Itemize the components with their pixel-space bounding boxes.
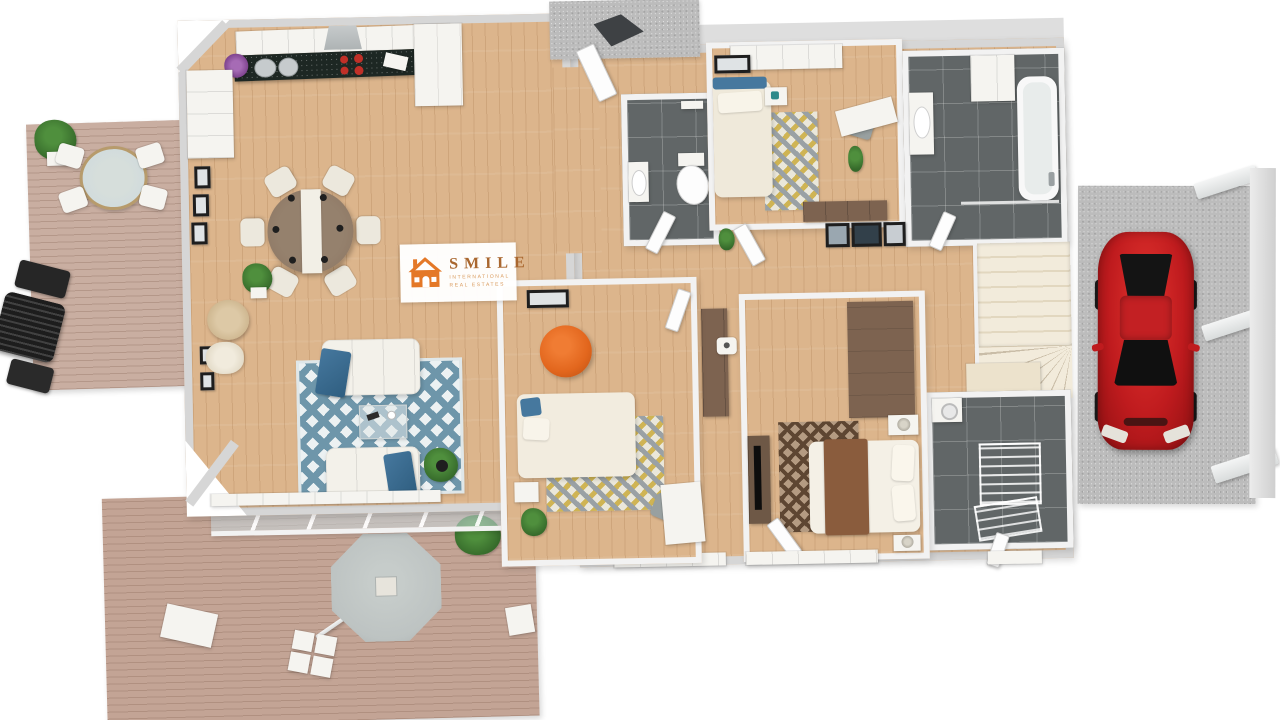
carport-edge-wall: [1249, 168, 1276, 498]
plant-pot: [251, 287, 267, 298]
window-sill: [210, 490, 440, 506]
wall-art: [194, 166, 210, 188]
cube-seats: [287, 630, 338, 679]
place-setting: [336, 225, 343, 232]
floor-basket: [206, 342, 245, 375]
bbq-side-shelf: [14, 259, 71, 299]
bed-runner: [824, 439, 870, 536]
bathroom-cabinet: [970, 55, 1015, 102]
tv-screen: [754, 446, 762, 510]
house-icon-door: [422, 276, 429, 287]
place-setting: [288, 195, 295, 202]
bed-pillow: [717, 90, 762, 113]
sink-basin: [913, 106, 931, 138]
planter-box: [160, 603, 218, 647]
stove-burner: [340, 55, 348, 63]
exterior-step: [988, 550, 1042, 564]
place-setting: [321, 256, 328, 263]
hall-picture: [825, 223, 849, 247]
wall-art: [193, 194, 209, 216]
house-icon-window: [414, 277, 419, 282]
wicker-chair: [207, 299, 250, 340]
driveway: [1078, 186, 1257, 504]
toilet-bowl: [673, 162, 712, 207]
bed-pillow: [523, 417, 550, 440]
entry-hall-floor: [552, 67, 602, 254]
tall-cabinet-fridge: [414, 23, 464, 106]
watermark-logo: SMILE INTERNATIONAL REAL ESTATES: [400, 242, 517, 302]
house-icon: [408, 257, 443, 290]
place-setting: [320, 194, 327, 201]
bed-headboard-blue: [713, 77, 767, 90]
cube-seat: [292, 630, 315, 652]
hall-cabinet: [701, 308, 729, 416]
cube-seat: [314, 634, 337, 656]
side-table-item: [724, 342, 730, 348]
plan-tilt-wrapper: SMILE INTERNATIONAL REAL ESTATES: [0, 0, 1280, 720]
wc-basin: [631, 170, 646, 196]
shower-glass: [961, 200, 1059, 205]
bedroom-master: [739, 291, 930, 563]
bed-pillow: [891, 484, 916, 522]
stove-burner: [340, 66, 348, 74]
bbq-body: [0, 291, 67, 364]
floor-plan-render: SMILE INTERNATIONAL REAL ESTATES: [0, 0, 1280, 720]
car-roof: [1120, 296, 1172, 340]
kitchen-side-cabinets: [186, 70, 234, 159]
nightstand: [514, 482, 538, 502]
car-windshield: [1114, 340, 1178, 386]
logo-text-block: SMILE INTERNATIONAL REAL ESTATES: [449, 255, 531, 289]
door-mat: [593, 14, 644, 47]
bedroom-top-right: [706, 39, 906, 231]
desk: [660, 482, 705, 545]
side-deck: [26, 120, 202, 391]
outdoor-chair: [134, 142, 165, 170]
bathroom-door: [928, 211, 956, 251]
hall-plant: [718, 228, 734, 250]
bean-bag-orange: [539, 325, 592, 378]
planter-box: [505, 604, 535, 636]
wardrobe: [847, 301, 915, 418]
cutting-board: [383, 52, 409, 71]
bedroom-center: [496, 277, 701, 567]
kitchen-sink: [254, 58, 277, 78]
parasol-center: [376, 577, 396, 596]
hall-picture: [851, 222, 881, 247]
entry-porch: [549, 0, 700, 60]
wc-door: [645, 211, 676, 255]
plant: [521, 508, 548, 536]
wall-art: [200, 372, 214, 390]
hall-picture: [883, 222, 905, 246]
stove-burner: [354, 54, 363, 63]
red-car: [1098, 232, 1194, 450]
wall-art: [191, 222, 207, 244]
dining-chair: [356, 216, 381, 244]
wall-art: [527, 289, 569, 308]
table-decor: [387, 411, 396, 420]
bed-pillow-blue: [520, 397, 542, 417]
table-runner: [301, 189, 323, 273]
bedroom-door: [665, 288, 692, 332]
wall-art: [714, 55, 750, 74]
bbq-grill: [0, 258, 98, 401]
stove-burner: [354, 66, 363, 75]
car-hood-vent: [1124, 418, 1168, 426]
logo-brand: SMILE: [449, 255, 531, 273]
bathroom: [902, 48, 1068, 247]
coffee-table: [359, 404, 408, 439]
shower-fixture: [1048, 172, 1054, 186]
staircase: [973, 242, 1072, 348]
wc-room: [621, 92, 720, 246]
logo-tagline-1: INTERNATIONAL: [449, 274, 531, 281]
range-hood: [324, 25, 362, 50]
nightstand-item: [771, 91, 779, 99]
low-cabinet: [803, 200, 887, 222]
bed-pillow: [891, 444, 915, 481]
bbq-side-shelf: [6, 358, 55, 394]
dining-chair: [240, 218, 265, 246]
flush-plate: [681, 101, 703, 109]
plant: [848, 146, 863, 172]
window: [746, 549, 878, 565]
outdoor-chair: [138, 184, 168, 211]
house-icon-window: [431, 277, 436, 282]
kitchen-sink: [278, 57, 299, 77]
cube-seat: [288, 651, 311, 673]
cube-seat: [310, 656, 333, 678]
utility-room: [926, 390, 1074, 551]
